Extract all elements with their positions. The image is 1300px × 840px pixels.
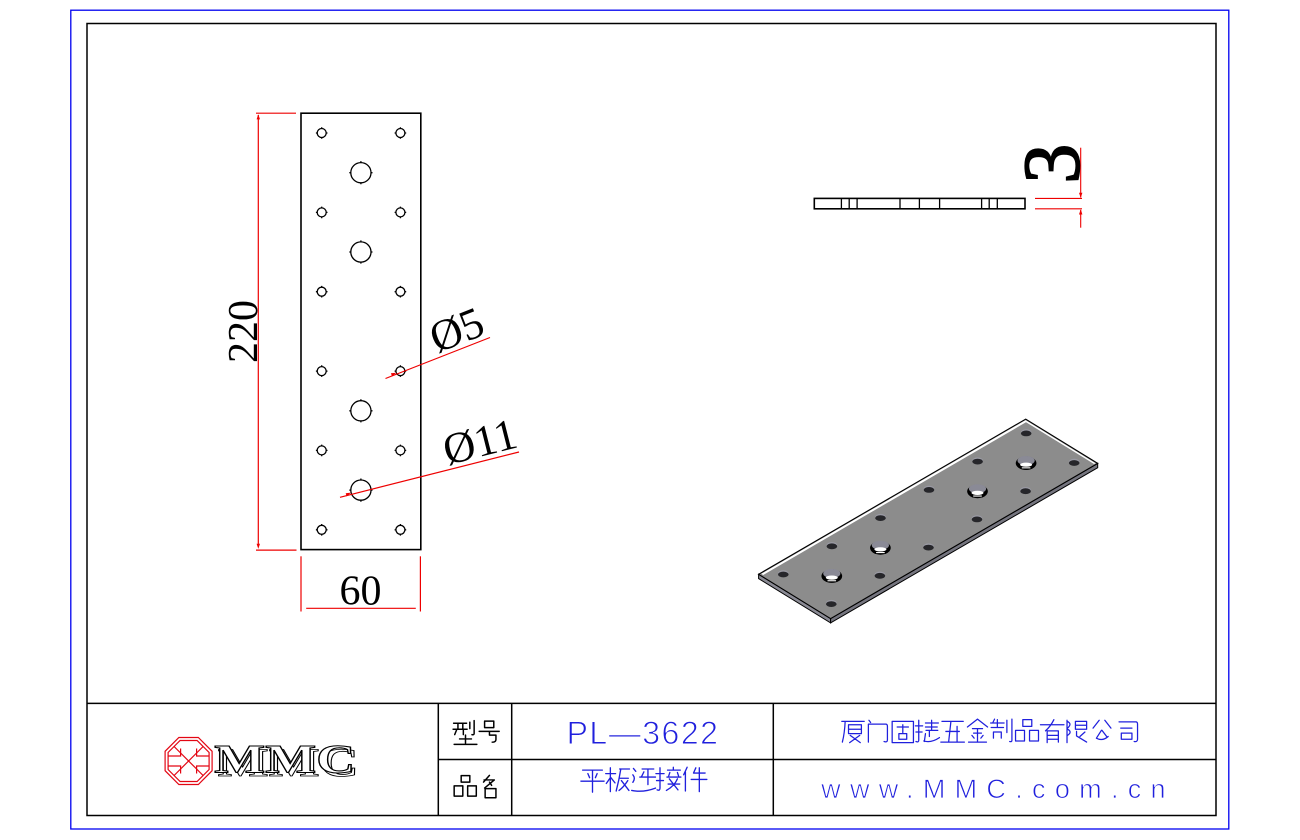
svg-text:MMC: MMC <box>214 738 355 782</box>
svg-text:www.MMC.com.cn: www.MMC.com.cn <box>820 774 1175 804</box>
svg-text:Ø5: Ø5 <box>423 297 491 362</box>
svg-text:PL—3622: PL—3622 <box>567 715 720 751</box>
svg-text:Ø11: Ø11 <box>438 409 522 475</box>
svg-text:3: 3 <box>1009 144 1097 184</box>
svg-text:60: 60 <box>340 569 382 615</box>
svg-text:220: 220 <box>221 300 267 363</box>
